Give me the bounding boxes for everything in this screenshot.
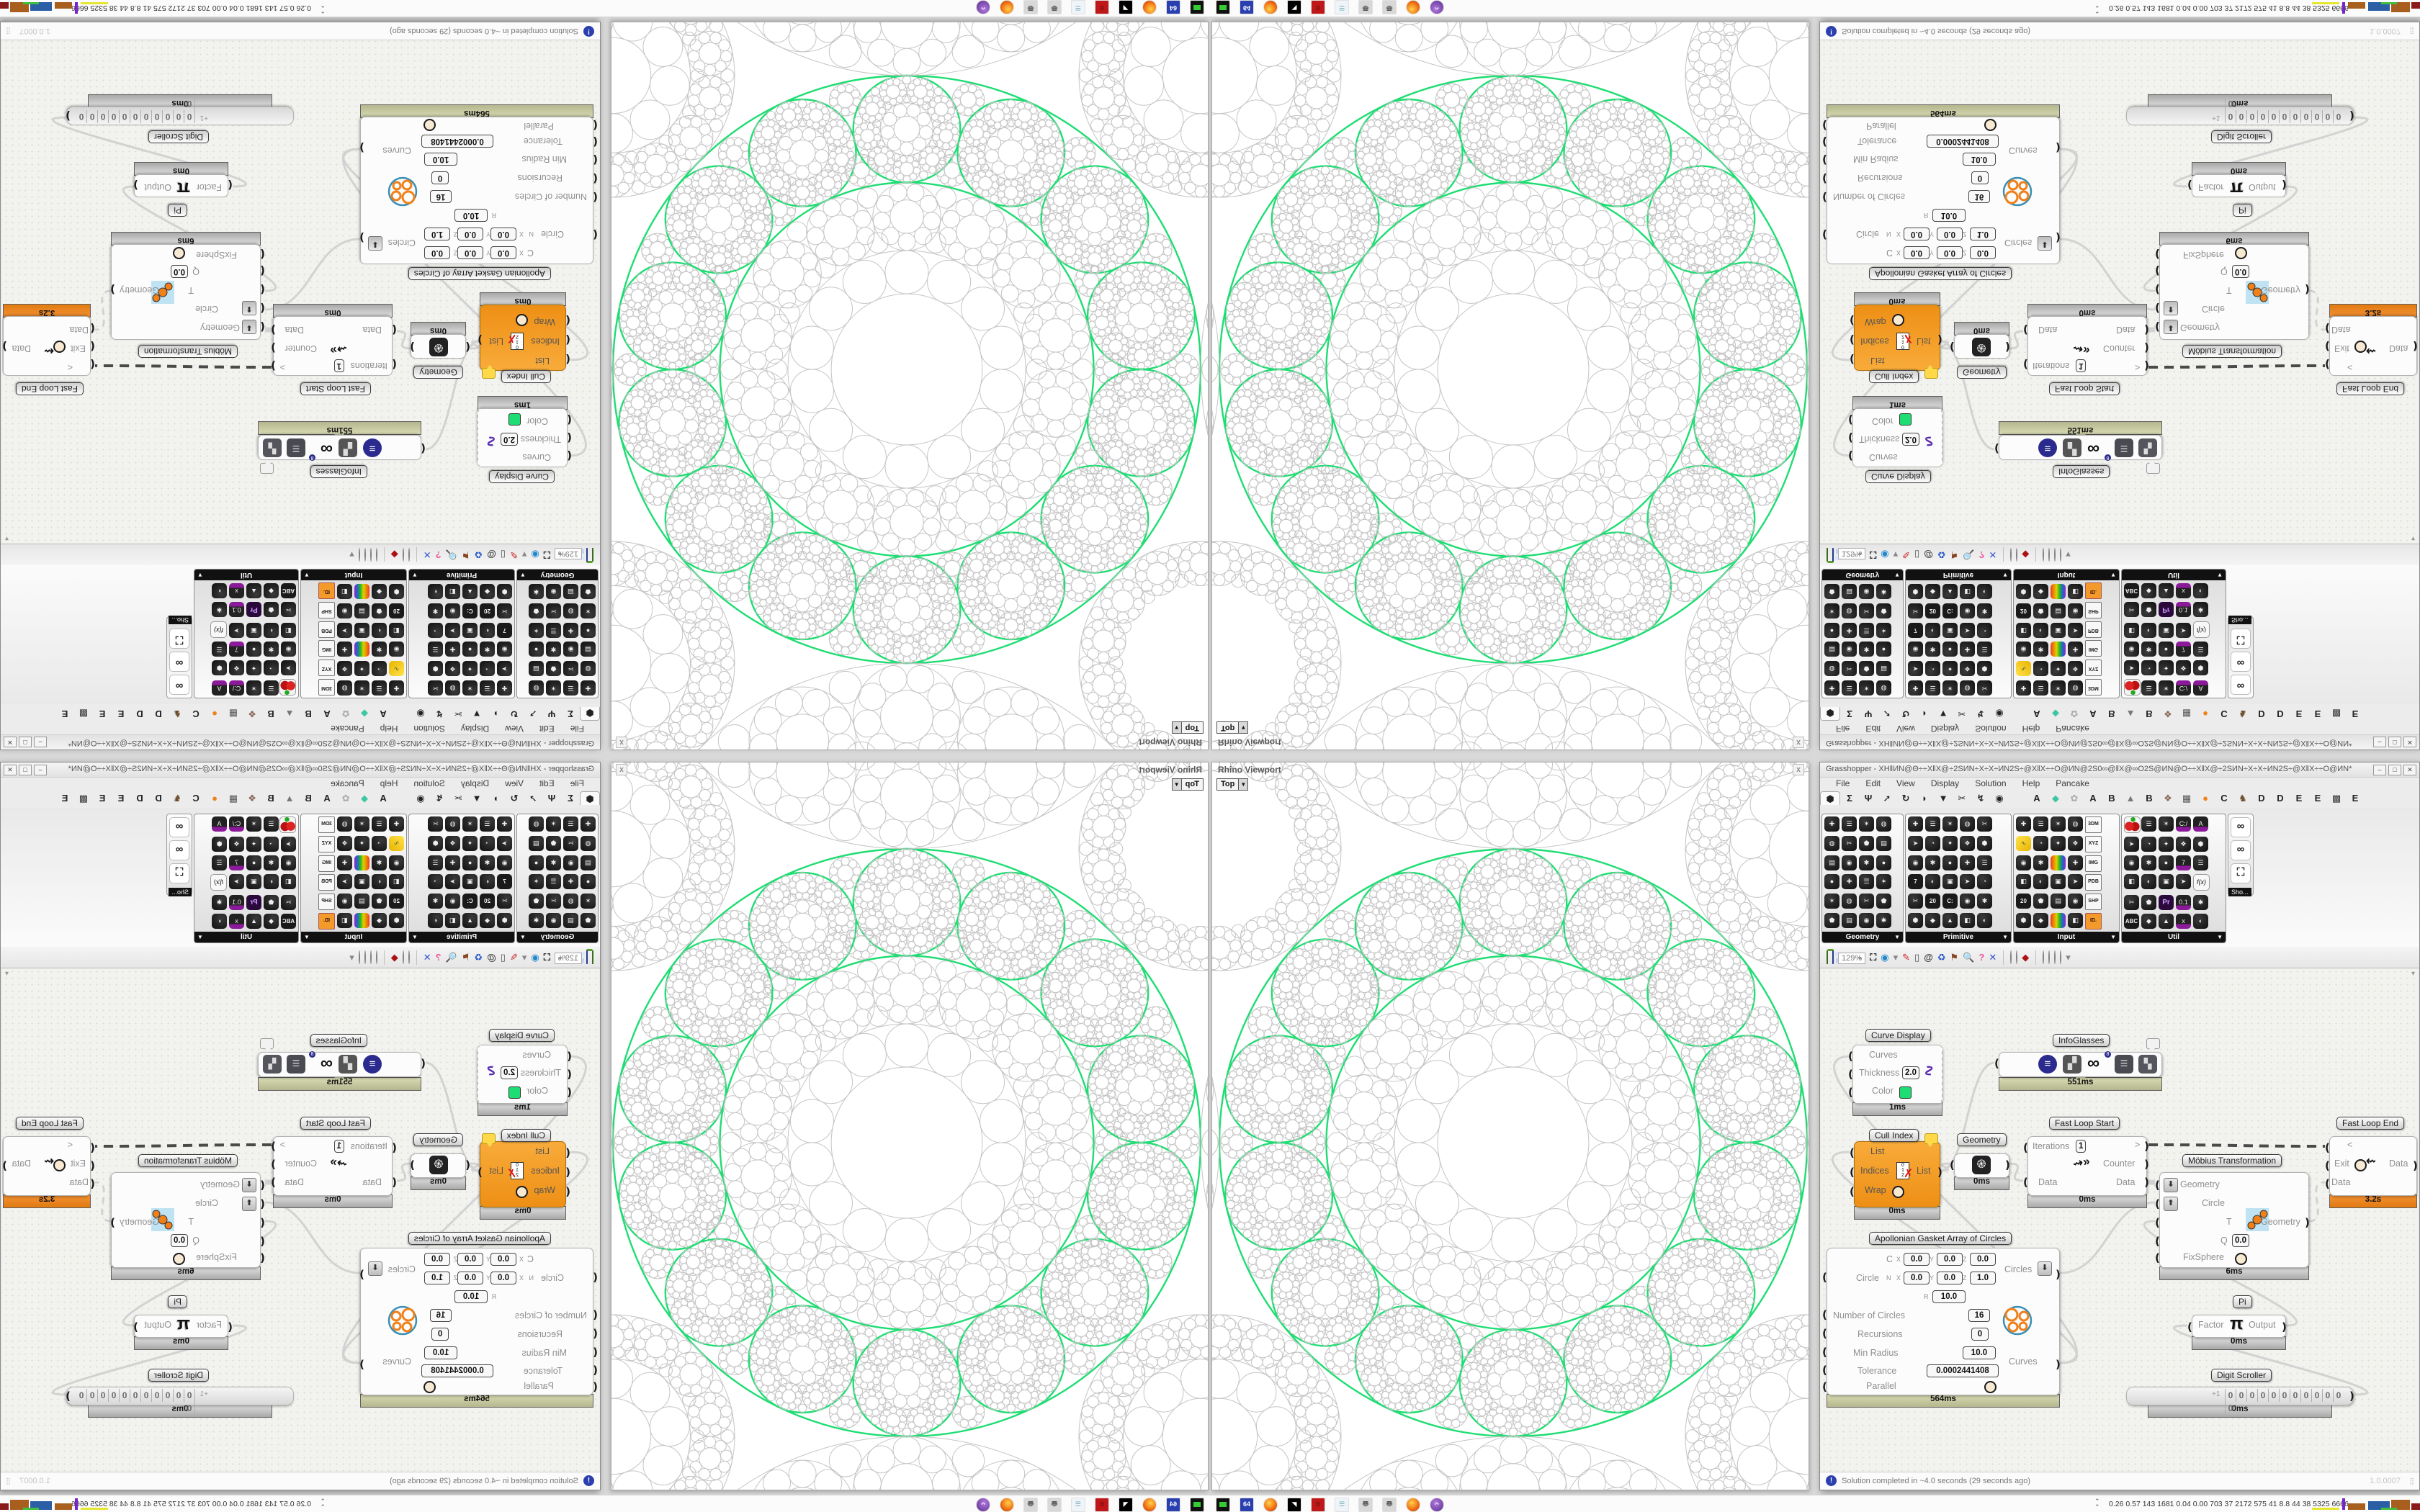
- component-icon[interactable]: ◍: [2068, 816, 2083, 832]
- preview-shaded-icon[interactable]: [364, 549, 366, 562]
- component-icon[interactable]: ◍: [1842, 894, 1857, 909]
- component-icon[interactable]: ✂: [1977, 680, 1992, 696]
- node-label-fast-loop-end[interactable]: Fast Loop End: [16, 1117, 84, 1130]
- component-icon[interactable]: ◉: [1859, 584, 1874, 599]
- chevron-down-icon[interactable]: ▼: [1239, 778, 1248, 791]
- node-label-fast-loop-start[interactable]: Fast Loop Start: [2049, 382, 2120, 395]
- component-icon-7[interactable]: 7: [1908, 623, 1923, 638]
- component-icon[interactable]: ◉: [389, 642, 404, 657]
- component-icon[interactable]: ☰: [428, 855, 443, 870]
- component-icon[interactable]: ◉: [337, 603, 352, 618]
- tab-plugin[interactable]: B: [261, 791, 280, 804]
- geometry-param-node[interactable]: ֎: [411, 1153, 466, 1178]
- component-icon[interactable]: ☰: [1925, 680, 1940, 696]
- component-icon[interactable]: ▤: [1876, 836, 1891, 851]
- component-icon-7[interactable]: 7: [229, 855, 244, 870]
- tolerance-value[interactable]: 0.0002441408: [421, 135, 493, 148]
- component-icon[interactable]: ◔: [372, 661, 387, 676]
- tab-mesh[interactable]: ▼: [467, 708, 486, 721]
- goggles-icon[interactable]: ∞: [169, 675, 189, 695]
- digit-cell[interactable]: 0: [2322, 1389, 2333, 1402]
- component-icon[interactable]: ☰: [264, 680, 279, 696]
- component-icon[interactable]: ⬟: [264, 895, 279, 910]
- archive-lens-icon[interactable]: ☰: [2115, 438, 2133, 457]
- component-icon[interactable]: ✱: [2033, 855, 2048, 870]
- fast-loop-start-node[interactable]: Iterations 1 Data ⇝» > Counter Data: [2027, 1136, 2147, 1196]
- color-swatch[interactable]: [1899, 413, 1912, 426]
- component-icon[interactable]: ✶: [1824, 603, 1839, 618]
- menu-item-display[interactable]: Display: [461, 778, 489, 788]
- node-label-cull-index[interactable]: Cull Index: [501, 1129, 551, 1142]
- c-x-value[interactable]: 0.0: [490, 1253, 516, 1266]
- flatten-arrow-icon[interactable]: ⬇: [2038, 236, 2052, 251]
- component-icon[interactable]: ✶: [462, 680, 478, 696]
- thickness-value[interactable]: 2.0: [501, 433, 518, 446]
- tab-surface[interactable]: ◗: [486, 708, 505, 721]
- chevron-down-icon[interactable]: ▼: [1172, 778, 1181, 791]
- fast-loop-end-node[interactable]: < Exit ⇜ Data Data: [3, 316, 91, 376]
- window-button[interactable]: □: [19, 737, 32, 747]
- component-icon[interactable]: ◐: [212, 583, 227, 598]
- component-icon[interactable]: ●: [246, 642, 261, 657]
- component-icon[interactable]: ◔: [2141, 660, 2156, 675]
- viewport-close-icon[interactable]: x: [616, 764, 627, 775]
- component-icon[interactable]: ⬢: [2016, 913, 2031, 928]
- component-icon[interactable]: ◐: [428, 584, 443, 599]
- fast-loop-end-node[interactable]: < Exit ⇜ Data Data: [2329, 1136, 2417, 1196]
- exit-toggle[interactable]: [2354, 341, 2367, 353]
- component-icon[interactable]: ▤: [581, 642, 596, 657]
- component-icon[interactable]: ❖: [445, 836, 460, 851]
- fast-loop-start-node[interactable]: Iterations 1 Data ⇝» > Counter Data: [273, 316, 393, 376]
- menu-item-solution[interactable]: Solution: [413, 778, 444, 788]
- c-z-value[interactable]: 0.0: [1970, 1253, 1996, 1266]
- tab-plugin[interactable]: D: [2271, 791, 2290, 804]
- digit-cell[interactable]: 0: [2257, 110, 2268, 123]
- node-label-digit-scroller[interactable]: Digit Scroller: [2211, 130, 2272, 143]
- component-icon[interactable]: ◐: [372, 623, 387, 638]
- obscure-icon[interactable]: ▯: [1914, 549, 1919, 562]
- component-icon-7[interactable]: 7: [497, 623, 512, 638]
- component-icon-IMG[interactable]: IMG: [2085, 640, 2102, 657]
- node-label-pi[interactable]: Pi: [168, 204, 187, 217]
- tab-plugin[interactable]: ▦: [224, 791, 243, 804]
- preview-off-icon[interactable]: [376, 549, 377, 562]
- preview-caret-icon[interactable]: ▾: [522, 951, 527, 964]
- goggles-icon[interactable]: ∞: [321, 438, 333, 459]
- tab-vector[interactable]: ➚: [524, 791, 542, 804]
- wrap-toggle[interactable]: [516, 1186, 528, 1198]
- gem-icon[interactable]: ◆: [391, 549, 398, 562]
- c-y-value[interactable]: 0.0: [457, 1253, 483, 1266]
- menu-item-help[interactable]: Help: [380, 724, 398, 734]
- component-icon[interactable]: ☰: [563, 680, 578, 696]
- commodore64-app-icon[interactable]: 64: [1166, 1498, 1180, 1512]
- package-icon[interactable]: ?: [1978, 951, 1984, 964]
- component-icon[interactable]: ◉: [281, 642, 296, 657]
- number-of-circles-value[interactable]: 16: [430, 1309, 452, 1322]
- component-icon-0.1[interactable]: 0.1: [229, 895, 244, 910]
- component-icon[interactable]: ☰: [372, 680, 387, 696]
- thickness-value[interactable]: 2.0: [1902, 1066, 1919, 1079]
- component-icon[interactable]: ◍: [581, 836, 596, 851]
- remote-icon[interactable]: @: [487, 951, 496, 964]
- component-icon[interactable]: ▲: [462, 913, 478, 928]
- component-icon[interactable]: ✱: [1859, 855, 1874, 870]
- save-file-icon[interactable]: [586, 549, 588, 562]
- preview-wire-icon[interactable]: [370, 549, 372, 562]
- component-icon[interactable]: ✶: [529, 874, 544, 889]
- component-icon[interactable]: ✦: [2051, 836, 2066, 851]
- component-icon[interactable]: ✚: [1824, 680, 1839, 696]
- component-icon[interactable]: ⬢: [389, 584, 404, 599]
- archive-lens-icon[interactable]: ☰: [287, 1055, 305, 1074]
- tab-plugin[interactable]: E: [2346, 708, 2365, 721]
- tab-plugin[interactable]: A: [2027, 708, 2046, 721]
- apollonian-node[interactable]: C X 0.0 Y 0.0 Z 0.0 Circle N X 0.0 Y 0.0…: [360, 117, 593, 264]
- tab-mesh[interactable]: ▼: [1934, 791, 1953, 804]
- digit-cell[interactable]: 0: [184, 97, 195, 110]
- blackbox-app-icon[interactable]: ◥: [1119, 1498, 1133, 1512]
- mobius-node[interactable]: ⬇ ⬆ Geometry Circle T Q 0.0 FixSphere: [2159, 1172, 2309, 1268]
- component-icon[interactable]: ✱: [2033, 642, 2048, 657]
- finder-icon[interactable]: 🔍: [1963, 951, 1974, 964]
- component-icon-3DM[interactable]: 3DM: [318, 816, 335, 833]
- digit-cell[interactable]: 0: [2246, 110, 2257, 123]
- digit-cell[interactable]: 0: [2279, 1389, 2290, 1402]
- tab-plugin[interactable]: ●: [2196, 708, 2215, 721]
- preview-wire-icon[interactable]: [2048, 549, 2050, 562]
- node-label-geometry[interactable]: Geometry: [413, 366, 463, 379]
- commodore64-app-icon[interactable]: 64: [1166, 0, 1180, 14]
- grasshopper-titlebar[interactable]: Grasshopper - XH‖ИN@Θ÷÷X‖X@÷2SИN÷X÷X÷ИN2…: [1, 762, 600, 778]
- zoom-level-combo[interactable]: 129%▼: [1838, 549, 1865, 562]
- component-icon[interactable]: ◔: [1925, 661, 1940, 676]
- palette-footer-primitive[interactable]: Primitive▼: [409, 570, 514, 580]
- chevron-down-icon[interactable]: ▼: [1239, 721, 1248, 734]
- flatten-arrow-icon[interactable]: ⬇: [368, 1261, 382, 1276]
- component-icon-ID.[interactable]: ID.: [318, 582, 335, 599]
- component-icon[interactable]: ✂: [497, 603, 512, 618]
- component-icon[interactable]: ◧: [2124, 874, 2139, 889]
- component-icon[interactable]: ✱: [529, 913, 544, 928]
- node-label-infoglasses[interactable]: InfoGlasses: [2053, 465, 2110, 478]
- component-icon[interactable]: ◧: [2068, 913, 2083, 928]
- component-icon[interactable]: ●: [1824, 874, 1839, 889]
- component-icon[interactable]: ●: [462, 855, 478, 870]
- component-icon[interactable]: ✚: [445, 855, 460, 870]
- digit-cell[interactable]: 0: [174, 110, 184, 123]
- palette-footer-util[interactable]: Util▼: [2122, 570, 2226, 580]
- component-icon[interactable]: ◍: [2068, 680, 2083, 696]
- component-icon[interactable]: ◐: [1925, 623, 1940, 638]
- component-icon[interactable]: ●: [2159, 855, 2174, 870]
- component-icon[interactable]: ➤: [281, 660, 296, 675]
- fast-loop-end-node[interactable]: < Exit ⇜ Data Data: [3, 1136, 91, 1196]
- menu-item-pancake[interactable]: Pancake: [2056, 724, 2089, 734]
- node-label-mobius[interactable]: Möbius Transformation: [2182, 1154, 2282, 1167]
- component-icon-C:/[interactable]: C:/: [2176, 816, 2191, 832]
- component-icon-PDB[interactable]: PDB: [318, 874, 335, 891]
- component-icon[interactable]: ◐: [1977, 913, 1992, 928]
- component-icon[interactable]: ➤: [2068, 874, 2083, 889]
- digit-cell[interactable]: 0: [2225, 1389, 2236, 1402]
- menu-item-file[interactable]: File: [1836, 724, 1850, 734]
- component-icon[interactable]: ✚: [1842, 623, 1857, 638]
- tab-plugin[interactable]: ▲: [2121, 791, 2140, 804]
- component-icon[interactable]: ⬟: [2033, 894, 2048, 909]
- component-icon-20[interactable]: 20: [1925, 894, 1940, 909]
- component-icon[interactable]: ✚: [1960, 642, 1975, 657]
- preview-menu-caret-icon[interactable]: ▾: [2066, 951, 2071, 964]
- component-icon[interactable]: ☰: [212, 642, 227, 657]
- component-icon[interactable]: ✚: [337, 855, 352, 870]
- mobius-node[interactable]: ⬇ ⬆ Geometry Circle T Q 0.0 FixSphere: [2159, 244, 2309, 340]
- balloon-gray-icon[interactable]: [408, 549, 410, 562]
- r-value[interactable]: 10.0: [1932, 209, 1966, 222]
- tab-plugin[interactable]: D: [149, 791, 168, 804]
- notepad-app-icon[interactable]: ☰: [1071, 0, 1085, 14]
- component-icon[interactable]: ◉: [497, 642, 512, 657]
- goggles-icon[interactable]: ∞: [2231, 817, 2251, 837]
- q-value[interactable]: 0.0: [2232, 265, 2249, 278]
- parallel-toggle[interactable]: [1984, 1381, 1996, 1393]
- component-icon[interactable]: ✚: [445, 642, 460, 657]
- maze-app-icon[interactable]: 〠: [1358, 1498, 1373, 1512]
- c-x-value[interactable]: 0.0: [490, 246, 516, 259]
- component-icon-C:/[interactable]: C:/: [229, 816, 244, 832]
- mobius-node[interactable]: ⬇ ⬆ Geometry Circle T Q 0.0 FixSphere: [111, 244, 261, 340]
- tab-vector[interactable]: ➚: [524, 708, 542, 721]
- tab-plugin[interactable]: ♞: [2233, 791, 2252, 804]
- component-icon[interactable]: ☰: [1977, 642, 1992, 657]
- digit-scroller-node[interactable]: +1 000000000000: [66, 107, 294, 125]
- component-icon[interactable]: ◍: [529, 680, 544, 696]
- component-icon[interactable]: ✱: [428, 894, 443, 909]
- tab-curve[interactable]: ↻: [505, 791, 524, 804]
- digit-cell[interactable]: 0: [2268, 1389, 2279, 1402]
- parallel-toggle[interactable]: [423, 119, 436, 131]
- sketch-pen-icon[interactable]: ✎: [1902, 951, 1910, 964]
- component-icon[interactable]: ✚: [1908, 680, 1923, 696]
- tolerance-value[interactable]: 0.0002441408: [1927, 135, 1999, 148]
- digit-cell[interactable]: 0: [184, 1389, 195, 1402]
- component-icon[interactable]: ❖: [337, 836, 352, 851]
- component-icon[interactable]: ◧: [1960, 584, 1975, 599]
- component-icon[interactable]: ◍: [1960, 816, 1975, 832]
- tab-display[interactable]: ◉: [1990, 791, 2009, 804]
- flag-icon[interactable]: ⚑: [1950, 549, 1959, 562]
- tab-plugin[interactable]: ▩: [74, 708, 93, 721]
- recursions-value[interactable]: 0: [431, 1328, 449, 1341]
- tab-plugin[interactable]: ❖: [2159, 791, 2177, 804]
- resize-grip[interactable]: ⣿: [5, 1477, 11, 1485]
- window-button[interactable]: –: [2373, 737, 2386, 747]
- component-icon[interactable]: ✶: [2159, 816, 2174, 832]
- palette-footer-primitive[interactable]: Primitive▼: [1906, 932, 2011, 942]
- digit-cell[interactable]: 0: [2300, 1389, 2311, 1402]
- menu-item-file[interactable]: File: [570, 724, 584, 734]
- component-icon[interactable]: ▤: [354, 894, 369, 909]
- component-icon[interactable]: ❖: [2068, 661, 2083, 676]
- component-icon[interactable]: ▤: [1842, 584, 1857, 599]
- puzzle-lens-icon[interactable]: ▚: [2138, 1055, 2157, 1074]
- preview-off-icon[interactable]: [2043, 951, 2044, 964]
- component-icon-SHP[interactable]: SHP: [318, 602, 335, 618]
- scroller-digits[interactable]: 000000000000: [2225, 97, 2353, 123]
- apollonian-node[interactable]: C X 0.0 Y 0.0 Z 0.0 Circle N X 0.0 Y 0.0…: [1827, 1248, 2060, 1395]
- preview-caret-icon[interactable]: ▾: [1894, 549, 1899, 562]
- tab-plugin[interactable]: D: [2252, 708, 2271, 721]
- component-icon-f(x)[interactable]: f(x): [2193, 621, 2210, 638]
- component-icon[interactable]: ◧: [389, 623, 404, 638]
- component-icon-C:/[interactable]: C:/: [2176, 680, 2191, 696]
- component-icon[interactable]: ⬟: [1876, 894, 1891, 909]
- tab-display[interactable]: ◉: [411, 791, 430, 804]
- menu-item-solution[interactable]: Solution: [1975, 724, 2006, 734]
- list-lens-icon[interactable]: ≡: [2038, 1055, 2057, 1074]
- digit-scroller-node[interactable]: +1 000000000000: [66, 1387, 294, 1405]
- gha-icon[interactable]: ♻: [1937, 951, 1946, 964]
- balloon-gray-icon[interactable]: [2010, 549, 2012, 562]
- component-icon[interactable]: ◧: [389, 874, 404, 889]
- component-icon[interactable]: ◉: [563, 855, 578, 870]
- r-value[interactable]: 10.0: [1932, 1290, 1966, 1303]
- component-icon[interactable]: ◍: [563, 894, 578, 909]
- component-icon[interactable]: ⬢: [428, 661, 443, 676]
- grasshopper-titlebar[interactable]: Grasshopper - XH‖ИN@Θ÷÷X‖X@÷2SИN÷X÷X÷ИN2…: [1, 734, 600, 750]
- component-icon[interactable]: ◐: [428, 913, 443, 928]
- tab-plugin[interactable]: B: [2140, 708, 2159, 721]
- component-icon-cherry[interactable]: [2124, 679, 2141, 696]
- component-icon[interactable]: ◉: [2124, 855, 2139, 870]
- archive-lens-icon[interactable]: ☰: [287, 438, 305, 457]
- graft-arrow-icon[interactable]: ⬆: [242, 1197, 256, 1211]
- component-icon[interactable]: ✱: [480, 642, 495, 657]
- digit-cell[interactable]: 0: [2236, 110, 2246, 123]
- component-icon[interactable]: ☰: [563, 816, 578, 832]
- component-icon-20[interactable]: 20: [2016, 603, 2031, 618]
- component-icon[interactable]: ✂: [428, 816, 443, 832]
- save-file-icon[interactable]: [1832, 549, 1834, 562]
- digit-cell[interactable]: 0: [2311, 1389, 2322, 1402]
- tab-intersect[interactable]: ✂: [449, 708, 467, 721]
- tab-maths[interactable]: Σ: [1840, 791, 1859, 804]
- component-icon[interactable]: ✂: [1859, 603, 1874, 618]
- tab-plugin[interactable]: ◆: [2046, 708, 2065, 721]
- component-icon[interactable]: ◉: [563, 642, 578, 657]
- red-gear-app-icon[interactable]: ✿: [1311, 1498, 1325, 1512]
- menu-item-display[interactable]: Display: [461, 724, 489, 734]
- tab-plugin[interactable]: D: [149, 708, 168, 721]
- component-icon[interactable]: ◆: [480, 913, 495, 928]
- tab-plugin[interactable]: E: [93, 708, 112, 721]
- red-gear-app-icon[interactable]: ✿: [1311, 0, 1325, 14]
- tab-vector[interactable]: ➚: [1878, 791, 1896, 804]
- n-x-value[interactable]: 0.0: [1904, 1272, 1930, 1284]
- component-icon[interactable]: ✶: [246, 816, 261, 832]
- flatten-arrow-icon[interactable]: ⬇: [2164, 1178, 2178, 1192]
- menu-item-view[interactable]: View: [505, 724, 524, 734]
- component-icon-7[interactable]: 7: [2176, 642, 2191, 657]
- sketch-pen-icon[interactable]: ✎: [510, 951, 518, 964]
- node-label-fast-loop-start[interactable]: Fast Loop Start: [300, 382, 371, 395]
- component-icon-rainbow[interactable]: [2051, 855, 2066, 870]
- component-icon-7[interactable]: 7: [1908, 874, 1923, 889]
- digit-cell[interactable]: 0: [152, 110, 163, 123]
- tab-plugin[interactable]: E: [112, 791, 130, 804]
- component-icon[interactable]: ✱: [212, 895, 227, 910]
- curve-display-node[interactable]: Curves Thickness 2.0 Color ∿: [1852, 1045, 1942, 1104]
- exit-toggle[interactable]: [2354, 1159, 2367, 1171]
- tab-curve[interactable]: ↻: [505, 708, 524, 721]
- grid-lens-icon[interactable]: ▞: [339, 1055, 357, 1074]
- note-balloon-icon[interactable]: [260, 1038, 274, 1049]
- component-icon[interactable]: ✚: [563, 874, 578, 889]
- component-icon[interactable]: ✂: [546, 894, 561, 909]
- tolerance-value[interactable]: 0.0002441408: [421, 1364, 493, 1377]
- maze-app-icon[interactable]: 〠: [1047, 0, 1062, 14]
- digit-cell[interactable]: 0: [2236, 1389, 2246, 1402]
- component-icon[interactable]: ✚: [1908, 816, 1923, 832]
- component-icon[interactable]: ◍: [1824, 836, 1839, 851]
- list-lens-icon[interactable]: ≡: [363, 438, 382, 457]
- tab-sets[interactable]: Ψ: [1859, 791, 1878, 804]
- palette-footer-primitive[interactable]: Primitive▼: [409, 932, 514, 942]
- grid-lens-icon[interactable]: ▞: [2063, 438, 2081, 457]
- component-icon[interactable]: ➤: [229, 623, 244, 638]
- note-balloon-icon[interactable]: [2146, 1038, 2160, 1049]
- node-label-digit-scroller[interactable]: Digit Scroller: [148, 130, 209, 143]
- digit-cell[interactable]: 0: [141, 110, 152, 123]
- component-icon[interactable]: ◍: [581, 661, 596, 676]
- q-value[interactable]: 0.0: [171, 265, 188, 278]
- tab-plugin[interactable]: E: [2290, 708, 2308, 721]
- goggles-icon[interactable]: ∞: [169, 817, 189, 837]
- digit-cell[interactable]: 0: [130, 110, 141, 123]
- firefox-app-icon[interactable]: [1263, 1498, 1278, 1512]
- terminal-app-icon[interactable]: [1216, 0, 1230, 14]
- digit-cell[interactable]: 0: [87, 1389, 98, 1402]
- digit-cell[interactable]: 0: [2257, 1389, 2268, 1402]
- digit-cell[interactable]: 0: [2279, 110, 2290, 123]
- c-x-value[interactable]: 0.0: [1904, 1253, 1930, 1266]
- curve-display-node[interactable]: Curves Thickness 2.0 Color ∿: [478, 1045, 568, 1104]
- component-icon[interactable]: ✱: [2193, 602, 2208, 617]
- component-icon[interactable]: ✶: [1859, 680, 1874, 696]
- component-icon-f(x)[interactable]: f(x): [210, 874, 227, 891]
- preview-custom-icon[interactable]: [2060, 951, 2061, 964]
- iterations-value[interactable]: 1: [2076, 1140, 2086, 1153]
- component-icon[interactable]: ➤: [445, 874, 460, 889]
- window-button[interactable]: ✕: [2403, 737, 2416, 747]
- node-label-curve-display[interactable]: Curve Display: [489, 1029, 555, 1042]
- component-icon[interactable]: ✱: [212, 602, 227, 617]
- component-icon[interactable]: ◔: [264, 660, 279, 675]
- component-icon[interactable]: ✚: [581, 680, 596, 696]
- node-label-mobius[interactable]: Möbius Transformation: [138, 1154, 238, 1167]
- menu-item-help[interactable]: Help: [2022, 724, 2040, 734]
- component-icon[interactable]: ➤: [1908, 661, 1923, 676]
- component-icon[interactable]: ⬟: [372, 894, 387, 909]
- grasshopper-titlebar[interactable]: Grasshopper - XH‖ИN@Θ÷÷X‖X@÷2SИN÷X÷X÷ИN2…: [1820, 734, 2419, 750]
- tab-plugin[interactable]: ◆: [355, 791, 374, 804]
- component-icon[interactable]: ✦: [354, 661, 369, 676]
- digit-cell[interactable]: 0: [120, 1389, 130, 1402]
- component-icon[interactable]: ◧: [2016, 874, 2031, 889]
- terminal-app-icon[interactable]: [1216, 1498, 1230, 1512]
- tab-transform[interactable]: ↯: [430, 708, 449, 721]
